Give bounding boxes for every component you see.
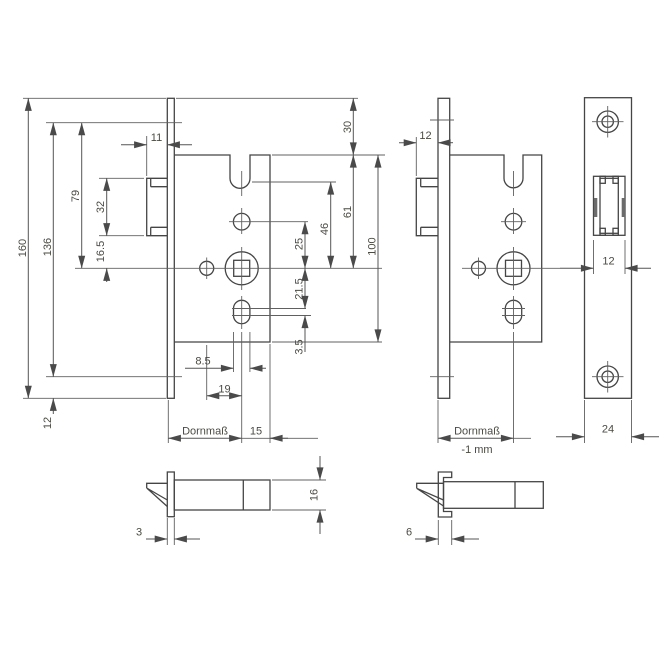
latch-gap-shade-left — [594, 198, 597, 217]
dim-label-19: 19 — [218, 384, 230, 396]
dim-label-24: 24 — [602, 424, 614, 436]
middle-side-view — [399, 98, 560, 443]
lock-case-outline — [174, 155, 270, 342]
plate-section-channel — [438, 472, 451, 517]
latch-bolt-side-2 — [416, 178, 438, 235]
faceplate-channel-outline — [438, 98, 450, 398]
dim-label-3-5: 3.5 — [294, 339, 306, 354]
latch-bevel-head-2 — [417, 483, 444, 506]
latch-body-channel — [444, 482, 544, 509]
dim-label-79: 79 — [70, 190, 82, 202]
left-side-view — [23, 98, 385, 443]
dim-label-21-5: 21.5 — [294, 278, 306, 299]
dim-label-16: 16 — [309, 489, 321, 501]
dim-label-12-left: 12 — [42, 417, 54, 429]
dim-label-30: 30 — [342, 121, 354, 133]
faceplate-front-outline — [585, 98, 632, 399]
latch-bolt-side — [147, 178, 168, 235]
latch-gap-shade-right — [622, 198, 625, 217]
dim-label-dornmass: Dornmaß — [182, 426, 228, 438]
dim-label-32: 32 — [95, 201, 107, 213]
dim-label-6: 6 — [406, 527, 412, 539]
dim-label-3: 3 — [136, 527, 142, 539]
dim-label-12-mid: 12 — [419, 130, 431, 142]
screw-crosshairs — [592, 106, 624, 393]
extension-lines-detail-channel — [438, 520, 451, 545]
faceplate-outline — [167, 98, 174, 398]
latch-ear-bl — [600, 228, 605, 235]
dim-label-160: 160 — [17, 239, 29, 257]
extension-lines-detail-flat — [167, 480, 326, 545]
latch-detail-flat — [146, 456, 326, 545]
lock-case-outline-2 — [450, 155, 542, 342]
latch-bevel-head — [147, 483, 168, 506]
mortise-lock-drawing: 160 136 12 79 32 16.5 11 30 61 100 46 25… — [0, 0, 660, 660]
centerlines — [75, 171, 382, 329]
dim-label-46: 46 — [319, 223, 331, 235]
latch-ear-tr — [613, 176, 618, 183]
dim-label-dornmass-2: Dornmaß — [454, 426, 500, 438]
dim-label-100: 100 — [367, 237, 379, 255]
dim-label-25: 25 — [294, 238, 306, 250]
latch-body-flat — [174, 480, 270, 510]
dim-label-61: 61 — [342, 206, 354, 218]
dim-label-8-5: 8.5 — [195, 356, 210, 368]
latch-cutout — [594, 176, 626, 235]
latch-ear-tl — [600, 176, 605, 183]
extension-lines-left-view — [23, 98, 385, 443]
dim-label-12-right: 12 — [602, 256, 614, 268]
dim-label-15: 15 — [250, 426, 262, 438]
latch-ear-br — [613, 228, 618, 235]
extension-lines-faceplate — [585, 240, 632, 443]
dim-label-minus-1mm: -1 mm — [461, 444, 492, 456]
latch-detail-channel — [415, 472, 543, 545]
faceplate-front-view — [556, 98, 659, 443]
plate-section-flat — [167, 472, 174, 517]
dim-label-11: 11 — [151, 132, 162, 144]
dim-label-16-5: 16.5 — [95, 241, 107, 262]
dim-label-136: 136 — [42, 238, 54, 256]
latch-face — [600, 178, 618, 233]
technical-drawing-page: 160 136 12 79 32 16.5 11 30 61 100 46 25… — [0, 0, 660, 660]
